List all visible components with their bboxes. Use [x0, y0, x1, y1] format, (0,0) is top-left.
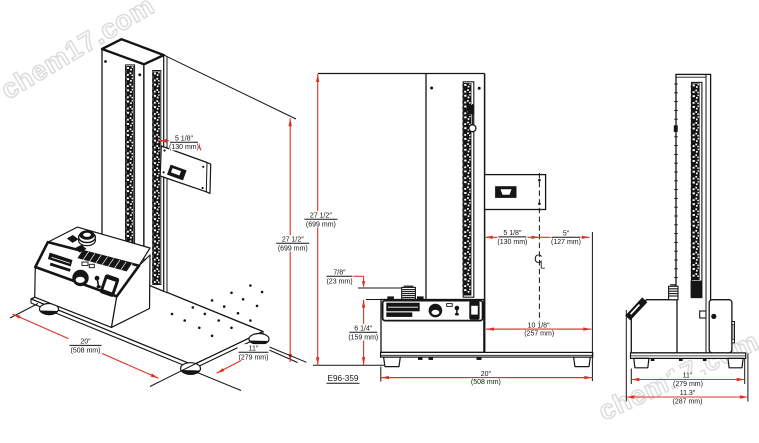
svg-text:11″: 11″ — [683, 373, 693, 380]
svg-text:5 1/8″: 5 1/8″ — [503, 230, 522, 237]
svg-text:(287 mm): (287 mm) — [673, 399, 703, 406]
svg-text:(508 mm): (508 mm) — [71, 347, 101, 354]
svg-text:L: L — [540, 260, 545, 271]
svg-text:7/8″: 7/8″ — [333, 270, 346, 277]
svg-text:11.3″: 11.3″ — [680, 390, 696, 397]
svg-text:(130 mm): (130 mm) — [497, 239, 527, 246]
svg-text:(508 mm): (508 mm) — [471, 379, 501, 386]
svg-text:5 1/8″: 5 1/8″ — [175, 135, 194, 142]
svg-text:(130 mm): (130 mm) — [169, 144, 199, 151]
svg-text:E96-359: E96-359 — [328, 374, 359, 383]
svg-text:(23 mm): (23 mm) — [326, 278, 352, 285]
svg-text:27 1/2″: 27 1/2″ — [310, 213, 332, 220]
svg-text:6 1/4″: 6 1/4″ — [354, 326, 373, 333]
svg-text:11″: 11″ — [249, 346, 259, 353]
svg-text:(279 mm): (279 mm) — [239, 354, 269, 361]
svg-text:(127 mm): (127 mm) — [551, 239, 581, 246]
svg-text:10 1/8″: 10 1/8″ — [528, 322, 550, 329]
svg-text:20″: 20″ — [80, 339, 91, 346]
svg-text:(699 mm): (699 mm) — [278, 245, 308, 252]
svg-text:27 1/2″: 27 1/2″ — [282, 237, 304, 244]
svg-text:(257 mm): (257 mm) — [524, 331, 554, 338]
svg-text:5″: 5″ — [563, 230, 570, 237]
svg-text:20″: 20″ — [481, 371, 492, 378]
svg-text:(279 mm): (279 mm) — [673, 381, 703, 388]
svg-text:(699 mm): (699 mm) — [306, 221, 336, 228]
svg-text:(159 mm): (159 mm) — [348, 334, 378, 341]
